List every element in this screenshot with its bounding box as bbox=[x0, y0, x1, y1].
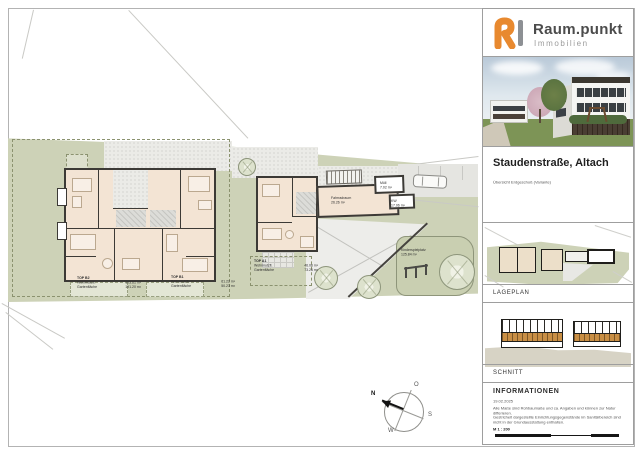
project-title: Staudenstraße, Altach bbox=[493, 157, 609, 169]
room-label-fahrradraum: Fahrradraum26.26 m² bbox=[331, 196, 351, 205]
site-plan: TOP B2 Wohnnutzfl.103.61 m² Gartenfläche… bbox=[0, 0, 480, 453]
schnitt-box: SCHNITT bbox=[482, 302, 634, 383]
room-label-kw: KW17.06 m² bbox=[391, 199, 405, 208]
tree-icon bbox=[357, 275, 381, 299]
scale-bar bbox=[495, 434, 619, 437]
lageplan-caption: LAGEPLAN bbox=[483, 284, 633, 302]
scale-label: M 1 : 200 bbox=[493, 427, 623, 432]
lageplan-box: LAGEPLAN bbox=[482, 222, 634, 303]
tree-icon bbox=[439, 254, 475, 290]
unit-label-top-a1: TOP A1 Wohnnutzfl.46.06 m² Gartenfläche7… bbox=[254, 259, 318, 273]
room-label-kinderspielplatz: Kinderspielplatz125.84 m² bbox=[401, 248, 426, 257]
boundary-line bbox=[128, 10, 248, 139]
brand-name: Raum.punkt bbox=[533, 21, 623, 38]
compass-s: S bbox=[428, 412, 432, 418]
title-block: Staudenstraße, Altach Übersicht Erdgesch… bbox=[482, 146, 634, 223]
info-note-2: Gestrichelt dargestellte Einrichtungsgeg… bbox=[493, 415, 623, 425]
swing-icon bbox=[404, 262, 430, 280]
compass-o: O bbox=[414, 382, 419, 388]
unit-label-top-b2: TOP B2 Wohnnutzfl.103.61 m² Gartenfläche… bbox=[77, 276, 141, 290]
building-b-floorplan bbox=[64, 168, 216, 282]
building-rendering bbox=[482, 56, 634, 147]
compass-n: N bbox=[371, 391, 375, 397]
compass-w: W bbox=[388, 428, 394, 434]
compass-icon: N O S W bbox=[370, 380, 440, 442]
info-box: INFORMATIONEN 19.02.2025 Alle Maße sind … bbox=[482, 382, 634, 445]
project-subtitle: Übersicht Erdgeschoß (Variante) bbox=[493, 180, 623, 185]
info-date: 19.02.2025 bbox=[493, 399, 623, 404]
raumpunkt-logo-icon bbox=[492, 17, 526, 49]
logo-box: Raum.punkt Immobilien bbox=[482, 8, 634, 57]
room-label-muell: Müll7.02 m² bbox=[380, 181, 392, 190]
unit-label-top-b1: TOP B1 Wohnnutzfl.61.22 m² Gartenfläche5… bbox=[171, 275, 235, 289]
boundary-line bbox=[22, 10, 34, 59]
outdoor-stair bbox=[326, 169, 362, 184]
info-heading: INFORMATIONEN bbox=[493, 388, 559, 395]
car-symbol bbox=[413, 174, 448, 189]
schnitt-caption: SCHNITT bbox=[483, 364, 633, 382]
building-a-floorplan bbox=[256, 176, 318, 252]
tree-icon bbox=[238, 158, 256, 176]
brand-tagline: Immobilien bbox=[534, 39, 589, 48]
